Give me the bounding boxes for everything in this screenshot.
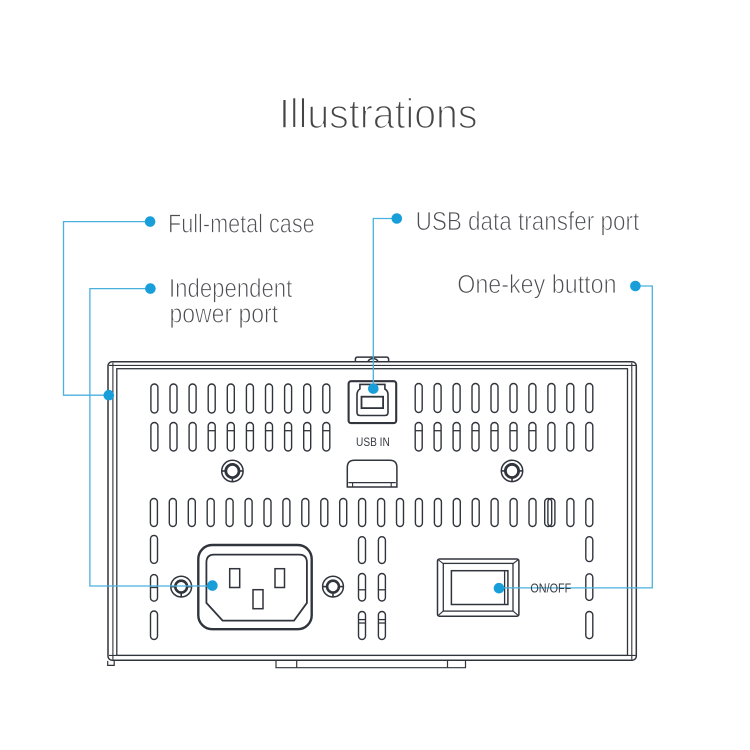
svg-text:USB data transfer port: USB data transfer port: [416, 208, 640, 236]
svg-text:USB IN: USB IN: [356, 437, 390, 449]
svg-text:One-key button: One-key button: [457, 271, 616, 299]
svg-text:Independent: Independent: [169, 275, 292, 303]
svg-text:ON/OFF: ON/OFF: [530, 581, 571, 595]
svg-text:power port: power port: [170, 301, 279, 329]
svg-text:Illustrations: Illustrations: [279, 90, 478, 137]
svg-text:Full-metal case: Full-metal case: [168, 211, 315, 239]
